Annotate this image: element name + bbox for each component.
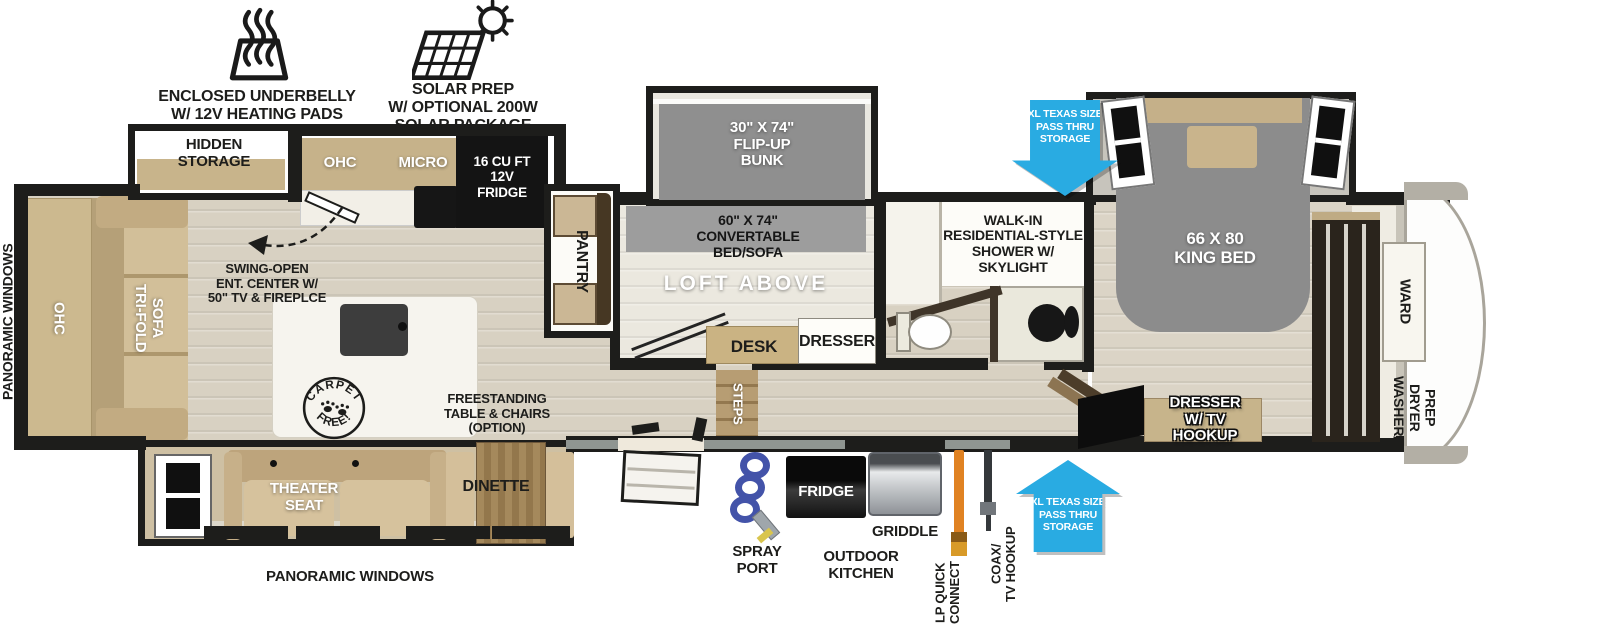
slideout-bottom-window [492, 526, 570, 539]
entry-door-gap [618, 438, 704, 451]
king-bed-label: 66 X 80 KING BED [1154, 226, 1276, 270]
cupholder [270, 460, 277, 467]
coax-connector [980, 502, 996, 515]
micro-label: MICRO [384, 152, 462, 174]
pass-thru-arrow-bottom: XL TEXAS SIZE PASS THRU STORAGE [1016, 460, 1120, 552]
griddle [868, 452, 942, 516]
kitchen-ohc-label: OHC [308, 152, 372, 174]
swing-open-label: SWING-OPEN ENT. CENTER W/ 50" TV & FIREP… [196, 260, 338, 308]
front-cap-trim [1404, 182, 1468, 200]
fridge-12v-label: 16 CU FT 12V FRIDGE [458, 144, 546, 210]
wall-segment [14, 184, 140, 196]
pass-thru-arrow-top: XL TEXAS SIZE PASS THRU STORAGE [1012, 100, 1118, 196]
carpet-free-stamp-icon: CARPET FREE! [300, 374, 368, 442]
rear-ohc-label: OHC [40, 270, 76, 366]
bunk-dresser-label: DRESSER [796, 332, 878, 352]
outdoor-kitchen-label: OUTDOOR KITCHEN [802, 546, 920, 586]
coax-cable [984, 450, 992, 508]
bottom-wall-window [845, 437, 945, 451]
dresser-tv-label: DRESSER W/ TV HOOKUP [1146, 392, 1264, 448]
shower-label: WALK-IN RESIDENTIAL-STYLE SHOWER W/ SKYL… [943, 206, 1083, 282]
bath-sink [1028, 304, 1066, 342]
island-sink [340, 304, 408, 356]
pass-thru-arrow-down-icon: XL TEXAS SIZE PASS THRU STORAGE [1012, 100, 1118, 196]
heating-pads-icon [218, 4, 300, 86]
dinette-label: DINETTE [438, 474, 554, 500]
lp-quick-connect-label: LP QUICK CONNECT [926, 552, 970, 634]
slideout-bottom-window [406, 526, 490, 539]
lp-hose [954, 450, 964, 538]
window-mullion [166, 493, 200, 498]
cooktop [414, 186, 458, 228]
pantry-shelf-column [597, 193, 611, 325]
pass-thru-bottom-label: XL TEXAS SIZE PASS THRU STORAGE [1016, 496, 1120, 534]
shower-drain [1064, 306, 1079, 338]
wall-segment [14, 436, 146, 450]
freestanding-option-label: FREESTANDING TABLE & CHAIRS (OPTION) [436, 390, 558, 438]
pass-thru-arrow-up-icon: XL TEXAS SIZE PASS THRU STORAGE [1016, 460, 1120, 552]
flip-up-bunk-label: 30" X 74" FLIP-UP BUNK [676, 112, 848, 178]
slideout-bottom-window [204, 526, 288, 539]
cupholder [352, 460, 359, 467]
panoramic-windows-left-label: PANORAMIC WINDOWS [0, 232, 17, 412]
tri-fold-sofa-label: TRI-FOLD SOFA [118, 252, 178, 384]
desk-label: DESK [710, 336, 798, 358]
theater-seat-label: THEATER SEAT [244, 478, 364, 518]
solar-prep-label: SOLAR PREP W/ OPTIONAL 200W SOLAR PACKAG… [375, 80, 551, 136]
lp-fitting [951, 532, 967, 542]
closet-slat [1344, 224, 1348, 436]
solar-panel-icon [412, 0, 514, 84]
bed-pillow [1187, 126, 1257, 168]
rv-floorplan: THEATER SEAT DINETTE OHC TRI-FOLD SOFA H… [0, 0, 1600, 636]
spray-port-label: SPRAY PORT [710, 542, 804, 580]
outdoor-fridge-label: FRIDGE [788, 482, 864, 502]
sink-faucet [398, 322, 407, 331]
slideout-bottom-window [296, 526, 380, 539]
closet-doors [1312, 220, 1380, 442]
pass-thru-top-label: XL TEXAS SIZE PASS THRU STORAGE [1012, 108, 1118, 146]
step-tread [627, 467, 695, 474]
griddle-label: GRIDDLE [864, 522, 946, 542]
toilet [908, 314, 952, 350]
steps-label: STEPS [720, 376, 754, 432]
loft-above-label: LOFT ABOVE [648, 270, 844, 298]
step-tread [627, 483, 695, 490]
bunk-bottom-wall [610, 358, 716, 370]
closet-slat [1326, 224, 1330, 436]
bath-vanity [886, 202, 942, 304]
hidden-storage-label: HIDDEN STORAGE [134, 130, 294, 178]
entry-steps [621, 450, 702, 506]
convertable-bed-sofa-label: 60" X 74" CONVERTABLE BED/SOFA [656, 210, 840, 264]
pantry-label: PANTRY [566, 206, 596, 316]
ward-label: WARD [1384, 246, 1424, 358]
swing-arrow-icon [240, 198, 350, 266]
bed-headboard-shelf [1124, 98, 1302, 123]
closet-slat [1362, 224, 1366, 436]
sofa-armrest [96, 196, 188, 228]
panoramic-windows-bottom-label: PANORAMIC WINDOWS [238, 566, 462, 588]
washer-dryer-prep-label: WASHER/ DRYER PREP [1386, 352, 1442, 464]
underbelly-label: ENCLOSED UNDERBELLY W/ 12V HEATING PADS [146, 86, 368, 126]
